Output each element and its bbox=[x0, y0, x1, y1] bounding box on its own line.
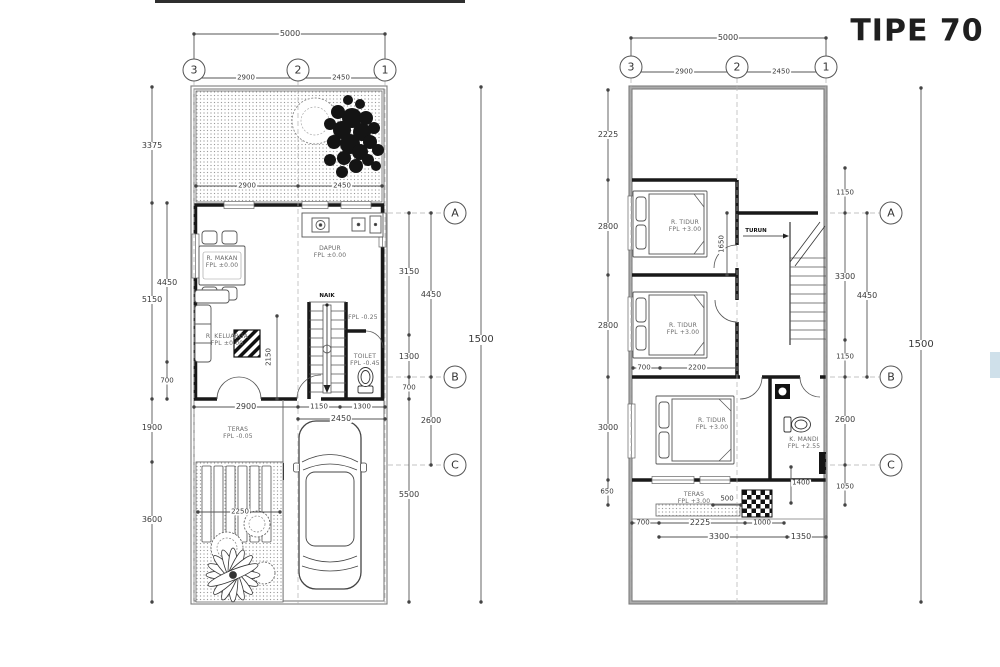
upper-dim-b5: 1350 bbox=[790, 533, 812, 541]
shower-icon bbox=[819, 452, 826, 474]
ground-grid-bubble-1: 1 bbox=[382, 65, 389, 76]
ground-dim-l6: 3600 bbox=[141, 516, 163, 524]
ground-dim-b2: 1150 bbox=[309, 404, 329, 411]
upper-dim-r2: 3300 bbox=[834, 273, 856, 281]
upper-grid-bubble-B: B bbox=[887, 372, 895, 383]
room-level-dapur: FPL ±0.00 bbox=[314, 253, 347, 259]
upper-dim-l2: 2800 bbox=[597, 223, 619, 231]
upper-dim-l1: 2225 bbox=[597, 131, 619, 139]
upper-dim-b1: 700 bbox=[635, 520, 650, 527]
ground-dim-garden-w1: 2900 bbox=[237, 183, 257, 190]
scan-edge-artifact bbox=[155, 0, 465, 3]
hall-level-label: FPL -0.25 bbox=[348, 315, 378, 321]
upper-dim-r3: 4450 bbox=[856, 292, 878, 300]
ground-grid-bubble-3: 3 bbox=[191, 65, 198, 76]
stair-down-label: TURUN bbox=[745, 228, 767, 234]
upper-dim-i2: 700 bbox=[636, 365, 651, 372]
upper-stair bbox=[743, 222, 826, 345]
ground-dim-total-height: 1500 bbox=[467, 335, 494, 345]
room-level-makan: FPL ±0.00 bbox=[206, 263, 239, 269]
upper-grid-bubble-C: C bbox=[887, 460, 895, 471]
upper-dim-l4: 3000 bbox=[597, 424, 619, 432]
upper-dim-i1: 1650 bbox=[719, 234, 726, 254]
sheet-title: TIPE 70 bbox=[850, 14, 983, 49]
kitchen-counter bbox=[302, 213, 383, 237]
upper-dim-w1: 2900 bbox=[674, 69, 694, 76]
ground-dim-w1: 2900 bbox=[236, 75, 256, 82]
ground-dim-r2: 4450 bbox=[420, 291, 442, 299]
ground-dim-r4: 700 bbox=[401, 385, 416, 392]
upper-dim-b4: 3300 bbox=[708, 533, 730, 541]
upper-dim-w2: 2450 bbox=[771, 69, 791, 76]
upper-grid-bubble-A: A bbox=[887, 208, 895, 219]
planter-box bbox=[742, 490, 772, 517]
room-level-mandi: FPL +2.55 bbox=[788, 444, 821, 450]
ground-grid-bubble-2: 2 bbox=[295, 65, 302, 76]
ground-grid-bubble-A: A bbox=[451, 208, 459, 219]
sofa bbox=[195, 290, 229, 362]
palm-tree-icon bbox=[206, 548, 260, 602]
upper-dim-total-height: 1500 bbox=[907, 340, 934, 350]
room-level-tidur2: FPL +3.00 bbox=[667, 330, 700, 336]
ground-dim-b1: 2900 bbox=[235, 403, 257, 411]
car-icon bbox=[294, 421, 367, 589]
upper-grid-bubble-1: 1 bbox=[823, 62, 830, 73]
ground-dim-l5: 1900 bbox=[141, 424, 163, 432]
wc-icon bbox=[784, 417, 811, 432]
upper-dim-i4: 500 bbox=[719, 496, 734, 503]
upper-dim-r1: 1150 bbox=[835, 190, 855, 197]
floor-plan-sheet: TIPE 70 3 2 1 A B C 5000 2900 2450 3375 … bbox=[0, 0, 1000, 667]
stair-up-label: NAIK bbox=[319, 293, 334, 299]
ground-grid-bubble-B: B bbox=[451, 372, 459, 383]
ground-dim-stair: 2150 bbox=[266, 347, 273, 367]
ground-dim-b3: 1300 bbox=[352, 404, 372, 411]
ground-grid-bubble-C: C bbox=[451, 460, 459, 471]
ground-dim-b4: 2450 bbox=[330, 415, 352, 423]
ground-back-garden bbox=[196, 462, 283, 602]
floor-plan-drawing bbox=[0, 0, 1000, 667]
toilet-wc bbox=[358, 368, 373, 394]
upper-dim-r4: 1150 bbox=[835, 354, 855, 361]
upper-dim-l3: 2800 bbox=[597, 322, 619, 330]
ground-dim-l1: 3375 bbox=[141, 142, 163, 150]
scan-blue-artifact bbox=[990, 352, 1000, 378]
room-level-tidur1: FPL +3.00 bbox=[669, 227, 702, 233]
ground-dim-r1: 3150 bbox=[398, 268, 420, 276]
upper-grid-bubble-3: 3 bbox=[628, 62, 635, 73]
room-level-upper-teras: FPL +3.00 bbox=[678, 499, 711, 505]
ground-dim-l2: 5150 bbox=[141, 296, 163, 304]
upper-dim-l5: 650 bbox=[599, 489, 614, 496]
ground-dim-total-width: 5000 bbox=[279, 30, 301, 38]
ground-dim-r5: 2600 bbox=[420, 417, 442, 425]
room-level-keluarga: FPL ±0.00 bbox=[211, 341, 244, 347]
ground-dim-garden-w2: 2450 bbox=[332, 183, 352, 190]
ground-dim-l3: 4450 bbox=[156, 279, 178, 287]
ground-dim-w2: 2450 bbox=[331, 75, 351, 82]
ground-dim-deck: 2250 bbox=[230, 509, 250, 516]
ground-dim-l4: 700 bbox=[159, 378, 174, 385]
upper-grid-bubble-2: 2 bbox=[734, 62, 741, 73]
upper-dim-b3: 1000 bbox=[752, 520, 772, 527]
upper-dim-i3: 2200 bbox=[687, 365, 707, 372]
ground-dim-r6: 5500 bbox=[398, 491, 420, 499]
ground-dim-r3: 1300 bbox=[398, 353, 420, 361]
room-level-teras: FPL -0.05 bbox=[223, 434, 253, 440]
upper-dim-b2: 2225 bbox=[689, 519, 711, 527]
bathroom-fixtures bbox=[775, 384, 826, 474]
room-level-tidur3: FPL +3.00 bbox=[696, 425, 729, 431]
ground-stair bbox=[309, 303, 346, 393]
upper-dim-r6: 1050 bbox=[835, 484, 855, 491]
upper-dim-i5: 1400 bbox=[791, 480, 811, 487]
upper-dim-total-width: 5000 bbox=[717, 34, 739, 42]
room-level-toilet: FPL -0.45 bbox=[350, 361, 380, 367]
upper-dim-r5: 2600 bbox=[834, 416, 856, 424]
